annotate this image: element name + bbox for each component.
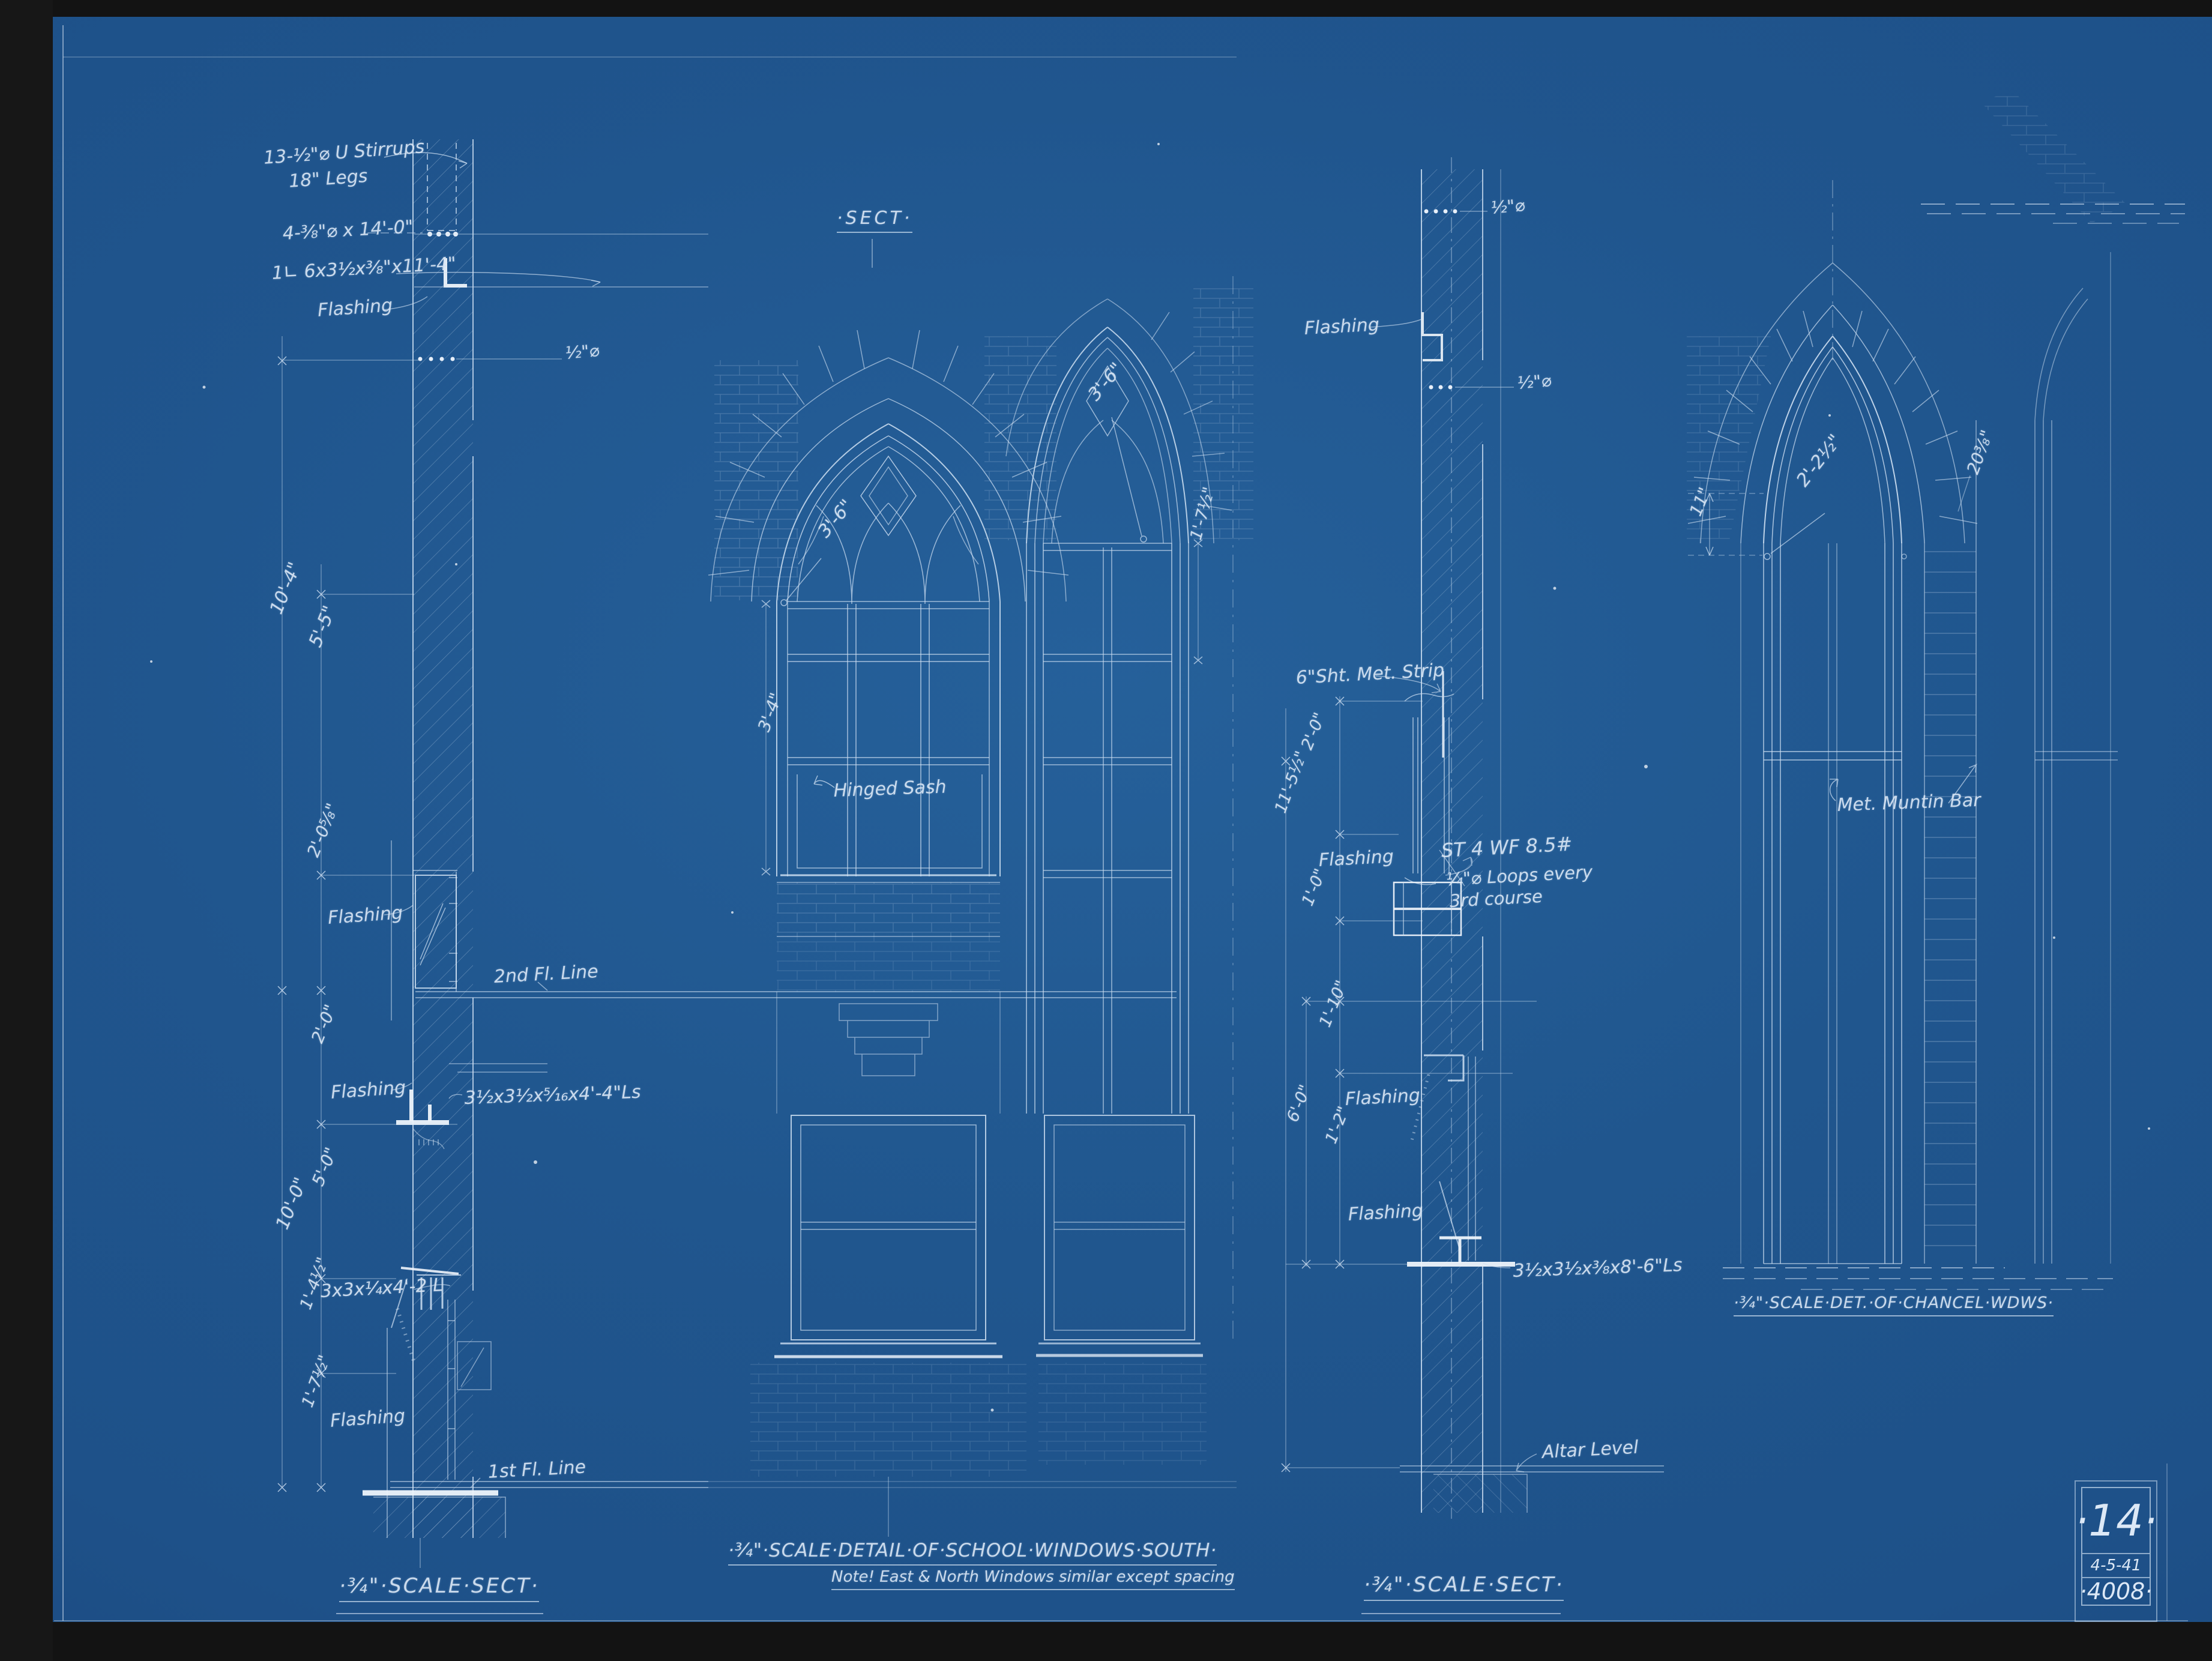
dim-5-5: 5'-5" <box>305 603 340 650</box>
label-bars-14ft: 4-⅜"⌀ x 14'-0" <box>282 217 414 244</box>
label-half-dia-right-1: ½"⌀ <box>1490 195 1526 218</box>
title-block: ·14· 4-5-41 ·4008· <box>2075 1480 2157 1622</box>
label-flashing-right-lower: Flashing <box>1348 1200 1424 1225</box>
label-flashing-right-mid2: Flashing <box>1345 1085 1421 1109</box>
label-angle-4ft2: 3x3x¼x4'-2 L <box>320 1274 444 1302</box>
label-hinged-sash: Hinged Sash <box>833 776 947 801</box>
label-angle-4ft4: 3½x3½x⁵⁄₁₆x4'-4"Ls <box>464 1082 641 1109</box>
blueprint-scan: 13-½"⌀ U Stirrups18" Legs4-⅜"⌀ x 14'-0"1… <box>0 0 2212 1661</box>
dim-10-0: 10'-0" <box>272 1174 312 1232</box>
annotation-layer: 13-½"⌀ U Stirrups18" Legs4-⅜"⌀ x 14'-0"1… <box>0 0 2212 1661</box>
label-met-muntin-bar: Met. Muntin Bar <box>1837 790 1981 816</box>
label-flashing-left-top: Flashing <box>317 295 393 321</box>
sheet-number: ·14· <box>2082 1488 2150 1553</box>
label-st4wf: ST 4 WF 8.5# <box>1441 833 1573 862</box>
scan-edge-left <box>0 0 53 1661</box>
label-flashing-left-bottom: Flashing <box>330 1405 406 1432</box>
label-3rd-course: 3rd course <box>1449 886 1543 911</box>
title-sect: ·SECT· <box>837 208 912 233</box>
title-block-inner: ·14· 4-5-41 ·4008· <box>2081 1487 2151 1606</box>
label-half-dia-left: ½"⌀ <box>564 340 600 363</box>
label-stirrup-legs: 18" Legs <box>288 166 368 192</box>
dim-2-0-58: 2'-0⅝" <box>303 800 343 860</box>
scan-edge-bottom <box>0 1622 2212 1661</box>
label-flashing-left-mid: Flashing <box>327 902 403 929</box>
drawing-number: ·4008· <box>2082 1577 2150 1605</box>
label-flashing-left-lower: Flashing <box>330 1077 406 1103</box>
title-school-windows: ·¾"·SCALE·DETAIL·OF·SCHOOL·WINDOWS·SOUTH… <box>728 1540 1217 1566</box>
note-east-north-windows: Note! East & North Windows similar excep… <box>831 1568 1235 1590</box>
label-angle-8ft6: 3½x3½x⅜x8'-6"Ls <box>1513 1255 1683 1282</box>
dim-2-0: 2'-0" <box>307 1002 340 1046</box>
label-loops-every: ¼"⌀ Loops every <box>1445 861 1593 890</box>
dim-5-0: 5'-0" <box>308 1145 341 1189</box>
label-1st-floor-line: 1st Fl. Line <box>487 1456 586 1482</box>
title-right-scale-sect: ·¾"·SCALE·SECT· <box>1364 1573 1564 1601</box>
scan-edge-top <box>0 0 2212 17</box>
label-2nd-floor-line: 2nd Fl. Line <box>493 961 598 987</box>
dim-3-6-left-arch: 3'-6" <box>814 496 857 542</box>
dim-1-7-5-center: 1'-7½" <box>1187 485 1219 542</box>
label-altar-level: Altar Level <box>1541 1437 1639 1463</box>
drawing-date: 4-5-41 <box>2082 1553 2150 1577</box>
dim-3-4: 3'-4" <box>754 690 786 735</box>
label-half-dia-right-2: ½"⌀ <box>1516 370 1552 393</box>
title-left-scale-sect: ·¾"·SCALE·SECT· <box>339 1574 539 1602</box>
dim-10-4: 10'-4" <box>266 559 306 617</box>
blueprint-paper: 13-½"⌀ U Stirrups18" Legs4-⅜"⌀ x 14'-0"1… <box>53 17 2212 1622</box>
label-sheet-metal-strip: 6"Sht. Met. Strip <box>1295 660 1445 689</box>
dim-1-0: 1'-0" <box>1298 866 1330 909</box>
dim-1-10: 1'-10" <box>1316 978 1351 1030</box>
dim-1-7-5-left: 1'-7½" <box>298 1352 334 1409</box>
dim-11in: 11" <box>1686 484 1715 519</box>
dim-2-0-right: 2'-0" <box>1298 710 1330 753</box>
dim-1-2: 1'-2" <box>1322 1104 1354 1147</box>
dim-2-2-5: 2'-2½" <box>1792 430 1846 490</box>
dim-3-6-right-arch: 3'-6" <box>1084 359 1127 405</box>
dim-11-5-5: 11'-5½" <box>1271 749 1311 815</box>
label-flashing-right-mid: Flashing <box>1318 846 1394 870</box>
label-angle-11ft4: 1∟ 6x3½x⅜"x11'-4" <box>271 253 457 284</box>
dim-20-38: 20⅜" <box>1963 427 1997 477</box>
dim-6-0: 6'-0" <box>1283 1082 1315 1125</box>
label-u-stirrups: 13-½"⌀ U Stirrups <box>263 136 425 169</box>
label-flashing-right-top: Flashing <box>1304 314 1380 339</box>
title-chancel-windows: ·¾"·SCALE·DET.·OF·CHANCEL·WDWS· <box>1734 1294 2054 1316</box>
